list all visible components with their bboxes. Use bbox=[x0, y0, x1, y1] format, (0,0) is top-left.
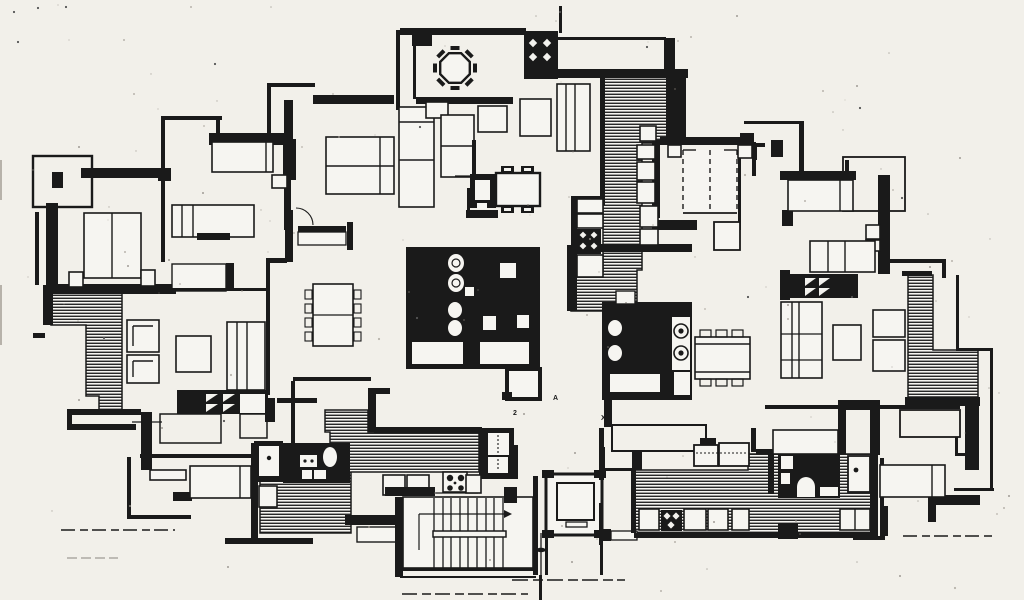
svg-text:2: 2 bbox=[513, 410, 517, 417]
svg-text:A: A bbox=[553, 395, 558, 402]
svg-text:X: X bbox=[601, 415, 606, 422]
